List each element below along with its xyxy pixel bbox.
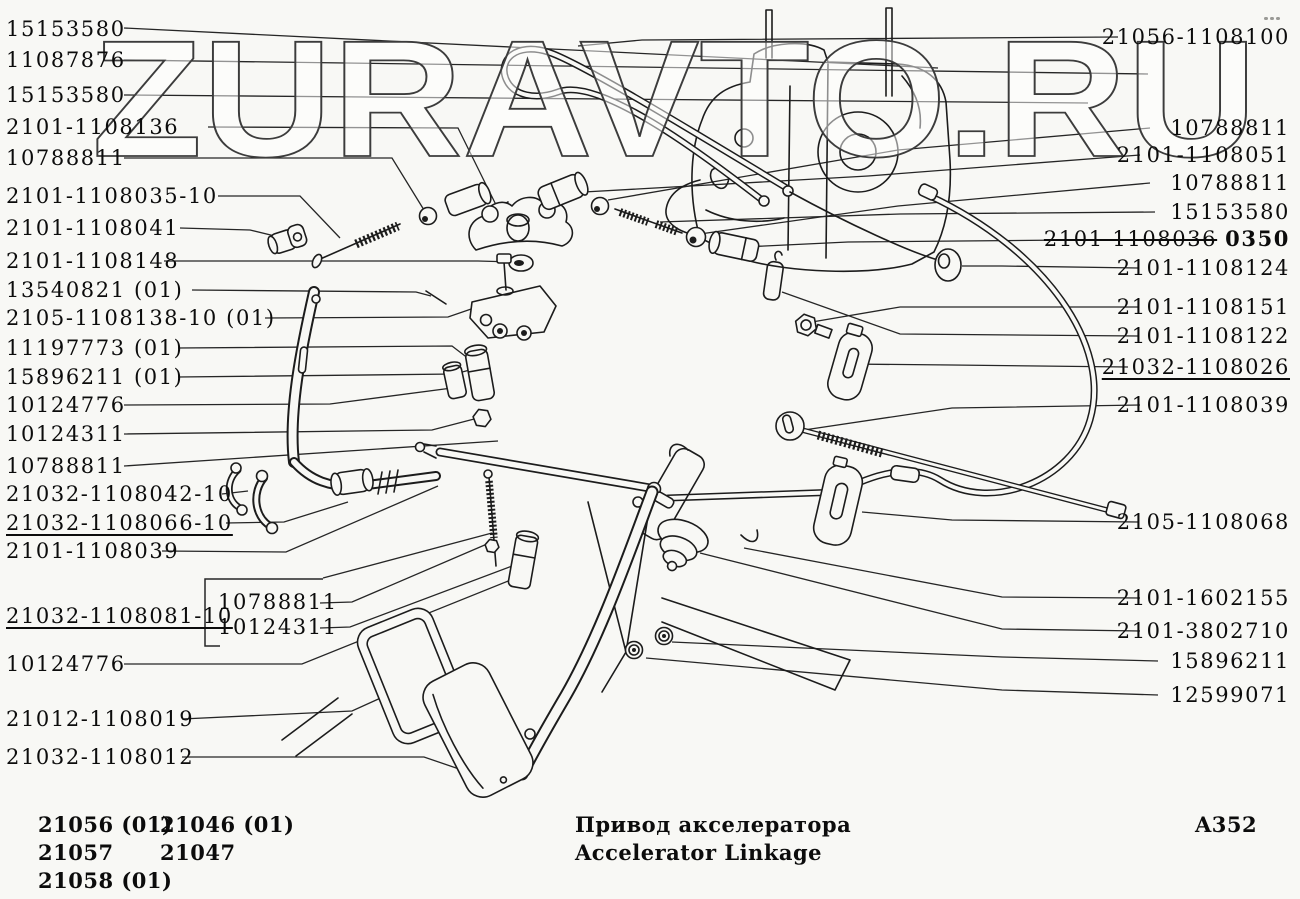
threaded-stud xyxy=(310,224,400,269)
part-label: 2101-1108039 xyxy=(1117,392,1290,418)
lever-elbow xyxy=(265,223,308,256)
part-label: 15153580 xyxy=(1170,199,1290,225)
lock-nut-c xyxy=(687,228,706,247)
rubber-boot xyxy=(646,513,712,579)
pivot-nuts xyxy=(626,628,673,659)
watermark-text: ZURAVTO.RU xyxy=(92,7,1257,192)
cable-bracket-upper xyxy=(824,322,877,403)
washer-a xyxy=(509,255,533,271)
part-label: 10788811 xyxy=(6,453,126,479)
lock-nut-a xyxy=(420,208,437,225)
lock-nut-b xyxy=(592,198,609,215)
firewall-grommet xyxy=(935,249,961,281)
part-label: 2101-1108148 xyxy=(6,248,179,274)
part-label: 2101-1108039 xyxy=(6,538,179,564)
part-label: 11087876 xyxy=(6,47,126,73)
part-label: 21056-1108100 xyxy=(1102,24,1290,50)
part-label: 11197773 (01) xyxy=(6,335,183,361)
part-label: 10788811 xyxy=(6,145,126,171)
model-number: 21047 xyxy=(160,840,236,865)
model-number: 21046 (01) xyxy=(160,812,294,837)
part-label: 2101-3802710 xyxy=(1117,618,1290,644)
diagram-title-ru: Привод акселератора xyxy=(575,812,851,837)
model-number: 21057 xyxy=(38,840,114,865)
throttle-stop-bolt xyxy=(792,312,833,343)
part-label: 2101-1108122 xyxy=(1117,323,1290,349)
struck-part-number: 2101-1108036 xyxy=(1044,227,1217,251)
part-label: 10788811 xyxy=(1170,170,1290,196)
spacer-bushings xyxy=(442,344,495,428)
small-return-spring xyxy=(763,251,784,300)
stamp-code: 0350 xyxy=(1225,226,1290,251)
lever-bracket xyxy=(426,254,556,340)
part-label: 13540821 (01) xyxy=(6,277,183,303)
part-label: 2101-1108035-10 xyxy=(6,183,218,209)
part-label: 2101-1108151 xyxy=(1117,294,1290,320)
pedal-lever xyxy=(293,292,436,486)
part-label: 21032-1108066-10 xyxy=(6,510,233,536)
part-label: 15153580 xyxy=(6,82,126,108)
part-label: 21032-1108026 xyxy=(1102,354,1290,380)
cable-elbow-c xyxy=(707,231,760,263)
diagram-title-en: Accelerator Linkage xyxy=(575,840,822,865)
cable-bracket-lower xyxy=(810,455,867,548)
part-label: 10124311 xyxy=(6,421,126,447)
part-label-corrected: 2101-11080360350 xyxy=(1044,226,1290,252)
part-label: 2101-1602155 xyxy=(1117,585,1290,611)
part-label: 15896211 (01) xyxy=(6,364,183,390)
page-code: A352 xyxy=(1195,812,1257,837)
part-label: 12599071 xyxy=(1170,682,1290,708)
part-label: 10788811 xyxy=(1170,115,1290,141)
part-label-grouped: 10124311 xyxy=(218,614,338,640)
part-label: 15153580 xyxy=(6,16,126,42)
part-label: 21032-1108012 xyxy=(6,744,194,770)
part-label: 21032-1108081-10 xyxy=(6,603,233,629)
scan-artifact xyxy=(1264,5,1294,13)
part-label: 2101-1108051 xyxy=(1117,142,1290,168)
part-label: 10124776 xyxy=(6,651,126,677)
part-label: 2101-1108041 xyxy=(6,215,179,241)
model-number: 21056 (01) xyxy=(38,812,172,837)
pedal-arm xyxy=(509,492,652,774)
model-number: 21058 (01) xyxy=(38,868,172,893)
catalog-page: ZURAVTO.RU 15153580 11087876 15153580 21… xyxy=(0,0,1300,899)
part-label: 10124776 xyxy=(6,392,126,418)
pedal-pushrod xyxy=(484,470,539,590)
panel-lines xyxy=(282,492,850,756)
part-label: 2105-1108068 xyxy=(1117,509,1290,535)
linkage-rod xyxy=(416,443,676,510)
part-label: 2101-1108136 xyxy=(6,114,179,140)
part-label: 21012-1108019 xyxy=(6,706,194,732)
exploded-diagram: ZURAVTO.RU xyxy=(0,0,1300,899)
part-label: 2101-1108124 xyxy=(1117,255,1290,281)
part-label-grouped: 10788811 xyxy=(218,589,338,615)
part-label: 21032-1108042-10 xyxy=(6,481,233,507)
part-label: 15896211 xyxy=(1170,648,1290,674)
part-label: 2105-1108138-10 (01) xyxy=(6,305,276,331)
